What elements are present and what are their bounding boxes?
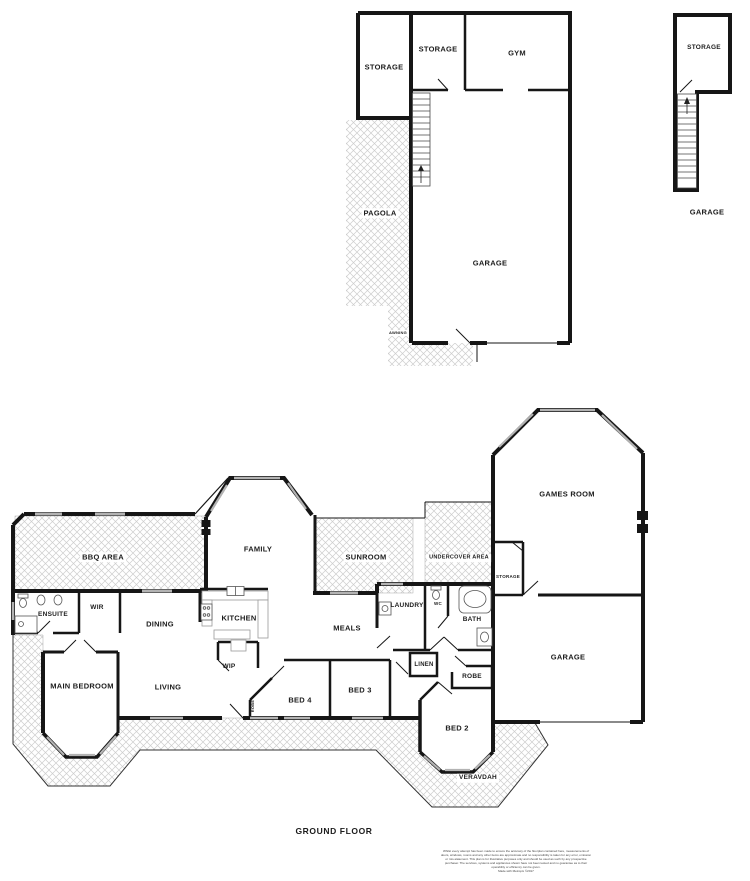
undercover-hatch xyxy=(425,502,493,584)
spa-bath xyxy=(459,586,491,613)
door-swing xyxy=(438,682,452,694)
room-label-storage-mid: STORAGE xyxy=(419,45,458,53)
wc-toilet xyxy=(431,586,441,600)
room-label-family: FAMILY xyxy=(244,545,272,553)
room-label-wir: WIR xyxy=(90,605,103,612)
floorplan-page: STORAGE STORAGE GYM PAGOLA GARAGE AWNING… xyxy=(0,0,750,881)
floorplan-drawing xyxy=(0,0,750,881)
room-label-meals: MEALS xyxy=(333,624,361,632)
ensuite-toilet xyxy=(18,594,28,608)
room-label-living: LIVING xyxy=(155,683,182,691)
room-label-bath: BATH xyxy=(463,617,482,624)
room-label-bed3: BED 3 xyxy=(348,686,371,694)
door-swing xyxy=(377,636,390,648)
room-label-games-room: GAMES ROOM xyxy=(539,490,594,498)
ensuite-shower xyxy=(15,616,37,633)
main-house-walls xyxy=(13,410,648,772)
door-swing xyxy=(680,80,692,92)
disclaimer-text: Whilst every attempt has been made to en… xyxy=(440,849,592,869)
door-jamb xyxy=(202,529,211,535)
door-swing xyxy=(38,621,50,633)
kitchen-sink xyxy=(227,587,244,596)
door-swing xyxy=(512,542,523,551)
room-label-dining: DINING xyxy=(146,620,174,628)
room-label-laundry: LAUNDRY xyxy=(390,603,423,610)
ensuite-basins xyxy=(37,595,62,605)
door-jamb xyxy=(637,511,648,520)
door-swing xyxy=(438,79,448,90)
room-label-gym: GYM xyxy=(508,49,526,57)
double-door-swing xyxy=(430,637,458,650)
laundry-tub xyxy=(379,602,391,615)
room-label-ensuite: ENSUITE xyxy=(38,612,68,619)
room-label-awning: AWNING xyxy=(387,330,409,336)
door-swing xyxy=(272,666,284,678)
room-label-bed4: BED 4 xyxy=(288,696,311,704)
room-label-robe-small: ROBE xyxy=(251,700,255,713)
room-label-linen: LINEN xyxy=(414,662,433,668)
hatch-areas xyxy=(13,120,548,807)
door-swing xyxy=(438,616,448,628)
room-label-bed2: BED 2 xyxy=(445,724,468,732)
double-door-swing xyxy=(64,640,96,652)
room-label-garage-upper: GARAGE xyxy=(473,259,507,267)
room-label-garage-main: GARAGE xyxy=(551,653,585,661)
bath-vanity xyxy=(477,628,492,646)
room-label-wc: WC xyxy=(434,602,442,607)
room-label-sunroom: SUNROOM xyxy=(344,552,389,562)
room-label-pagola: PAGOLA xyxy=(361,208,398,218)
room-label-undercover-area: UNDERCOVER AREA xyxy=(427,554,491,562)
awning-area xyxy=(388,306,473,366)
room-label-robe: ROBE xyxy=(462,674,482,681)
room-label-storage-small: STORAGE xyxy=(496,575,520,580)
door-swing xyxy=(455,656,466,666)
stairs-upper-right xyxy=(678,94,697,188)
room-label-wip: WIP xyxy=(222,664,235,671)
room-label-bbq-area: BBQ AREA xyxy=(80,552,126,562)
room-label-storage-left: STORAGE xyxy=(365,63,404,71)
door-swing xyxy=(396,662,408,674)
stove-cooktop xyxy=(201,604,212,620)
room-label-main-bedroom: MAIN BEDROOM xyxy=(50,682,113,690)
room-label-storage-right: STORAGE xyxy=(687,45,721,52)
door-swing xyxy=(523,581,538,595)
door-swing xyxy=(456,329,470,343)
room-label-kitchen: KITCHEN xyxy=(221,614,256,622)
floor-caption: GROUND FLOOR xyxy=(295,827,372,836)
door-jamb xyxy=(637,524,648,533)
building-caption-garage: GARAGE xyxy=(690,208,724,216)
door-jamb xyxy=(202,520,211,527)
door-swing xyxy=(230,704,243,718)
credit-text: Made with Metropix ©2017 xyxy=(440,869,592,873)
stairs-upper-left xyxy=(413,93,431,186)
room-label-verandah: VERAVDAH xyxy=(457,774,499,783)
